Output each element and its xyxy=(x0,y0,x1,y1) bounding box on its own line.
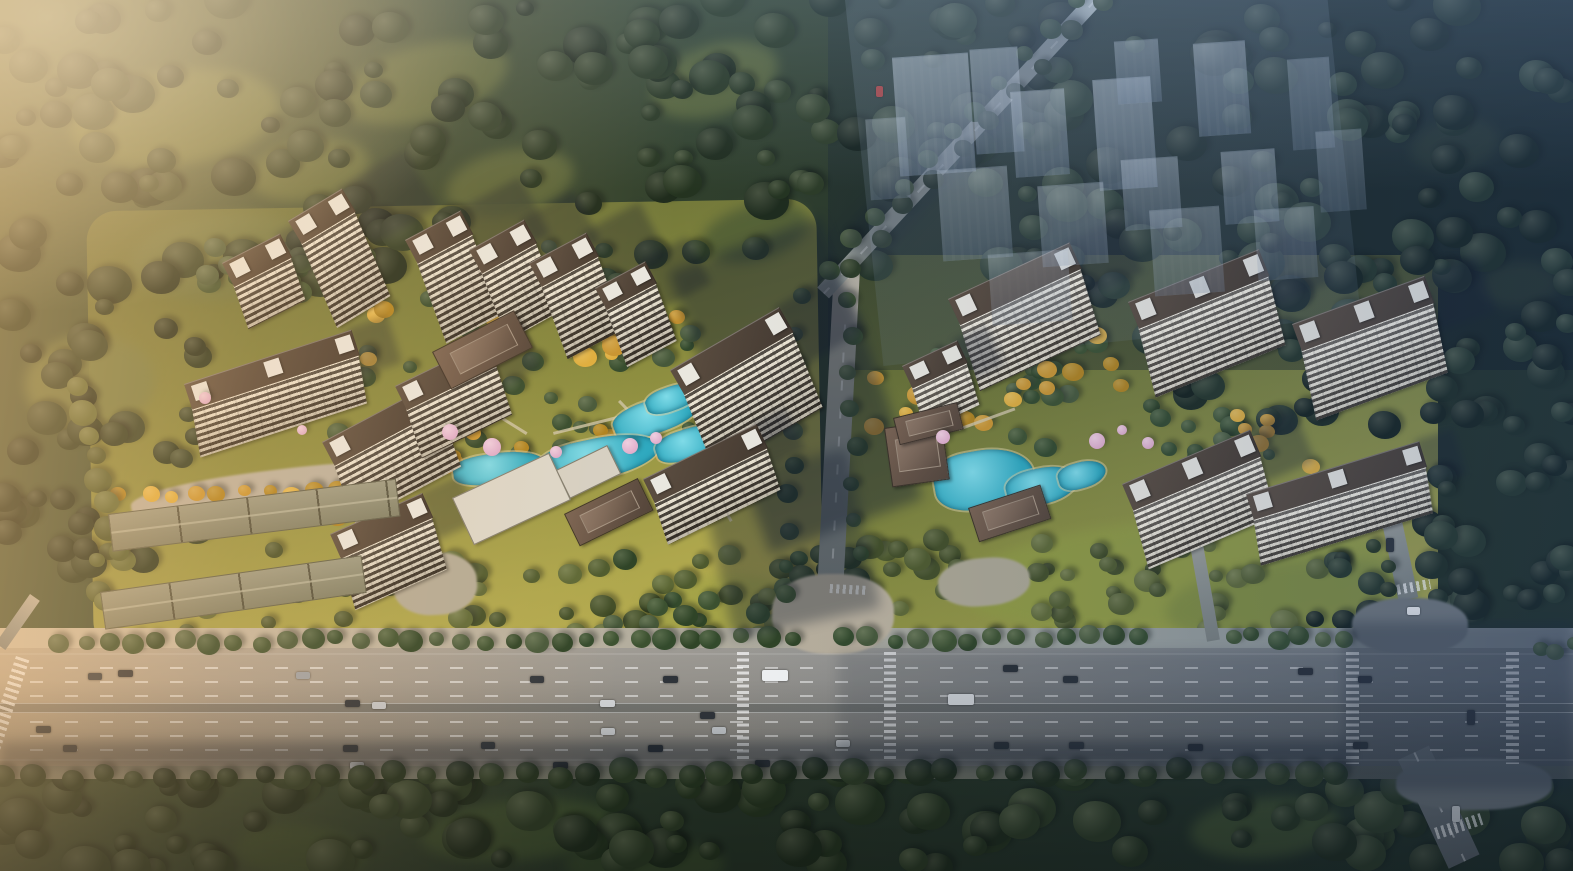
future-ghost-tower xyxy=(937,166,1013,262)
forest-tree xyxy=(904,548,931,571)
forest-tree xyxy=(796,94,830,123)
street-tree xyxy=(277,631,298,649)
forest-tree xyxy=(1438,481,1456,497)
vehicle xyxy=(345,700,360,707)
forest-tree xyxy=(574,52,613,85)
cast-shadow xyxy=(1345,622,1573,790)
forest-tree xyxy=(628,45,668,79)
blossom-tree xyxy=(1142,437,1154,449)
street-tree xyxy=(888,635,903,649)
forest-tree xyxy=(287,130,324,162)
rooftop-penthouse xyxy=(328,194,350,216)
street-tree xyxy=(785,632,801,646)
street-tree xyxy=(1268,631,1290,650)
blossom-tree xyxy=(442,424,458,440)
forest-tree xyxy=(1241,564,1265,584)
forest-tree xyxy=(1431,145,1465,174)
forest-tree xyxy=(1420,402,1446,424)
forest-tree xyxy=(9,218,47,250)
forest-tree xyxy=(1113,379,1129,392)
forest-tree xyxy=(1433,95,1474,130)
street-tree xyxy=(84,468,112,493)
forest-tree xyxy=(523,569,540,583)
forest-tree xyxy=(468,5,504,35)
street-tree xyxy=(1129,628,1148,645)
forest-tree xyxy=(666,835,687,853)
vehicle xyxy=(712,727,726,734)
cast-shadow xyxy=(838,650,1350,762)
blossom-tree xyxy=(622,438,638,454)
forest-tree xyxy=(1499,134,1539,168)
forest-tree xyxy=(1436,217,1473,248)
street-tree xyxy=(1035,632,1053,648)
rooftop-penthouse xyxy=(955,293,977,316)
rooftop-penthouse xyxy=(412,233,434,255)
street-tree xyxy=(874,767,894,785)
rooftop-penthouse xyxy=(1327,469,1347,489)
forest-tree xyxy=(588,559,610,577)
forest-tree xyxy=(1368,411,1401,439)
forest-tree xyxy=(506,791,553,831)
rooftop-penthouse xyxy=(1408,281,1429,303)
street-tree xyxy=(190,770,211,789)
street-tree xyxy=(833,627,854,646)
forest-tree xyxy=(61,846,111,871)
forest-tree xyxy=(280,87,316,118)
street-tree xyxy=(932,630,957,652)
street-tree xyxy=(165,491,178,503)
street-tree xyxy=(477,636,494,651)
street-tree xyxy=(1138,766,1157,783)
forest-tree xyxy=(489,612,506,627)
forest-tree xyxy=(1138,800,1167,825)
forest-tree xyxy=(1149,583,1166,597)
street-tree xyxy=(679,765,705,788)
forest-tree xyxy=(1451,400,1484,428)
street-tree xyxy=(122,634,144,654)
forest-tree xyxy=(243,812,267,832)
street-tree xyxy=(1288,626,1309,645)
forest-tree xyxy=(559,607,574,620)
street-tree xyxy=(87,447,106,464)
rooftop-penthouse xyxy=(942,345,962,364)
street-tree xyxy=(175,630,196,649)
street-tree xyxy=(217,768,238,787)
forest-tree xyxy=(166,836,187,854)
rooftop-penthouse xyxy=(536,256,558,278)
forest-tree xyxy=(211,158,256,196)
forest-tree xyxy=(261,117,280,133)
street-tree xyxy=(124,771,143,788)
forest-tree xyxy=(768,180,790,199)
forest-tree xyxy=(360,81,392,108)
forest-tree xyxy=(1517,589,1542,610)
street-tree xyxy=(302,628,325,649)
forest-tree xyxy=(491,850,512,868)
forest-tree xyxy=(315,70,353,102)
future-ghost-tower xyxy=(1149,206,1225,297)
forest-tree xyxy=(1328,558,1352,578)
future-ghost-tower xyxy=(1193,40,1251,136)
rooftop-penthouse xyxy=(229,257,251,279)
street-tree xyxy=(631,630,651,648)
rooftop-penthouse xyxy=(1402,446,1422,466)
street-tree xyxy=(1105,766,1125,784)
forest-tree xyxy=(1519,210,1557,243)
vehicle xyxy=(296,672,310,679)
forest-tree xyxy=(1027,563,1049,582)
forest-tree xyxy=(1306,611,1324,627)
forest-tree xyxy=(15,830,49,859)
forest-tree xyxy=(184,337,206,356)
forest-tree xyxy=(1448,568,1479,595)
forest-tree xyxy=(1230,409,1245,422)
street-tree xyxy=(1243,627,1259,641)
forest-tree xyxy=(170,449,193,468)
forest-tree xyxy=(674,150,693,166)
vehicle xyxy=(601,728,615,735)
forest-tree xyxy=(537,51,573,81)
forest-tree xyxy=(1533,68,1564,94)
vehicle xyxy=(762,670,788,681)
forest-tree xyxy=(1231,830,1252,848)
forest-tree xyxy=(79,132,115,163)
forest-tree xyxy=(145,806,177,833)
street-tree xyxy=(48,634,69,653)
forest-tree xyxy=(204,238,226,257)
forest-tree xyxy=(647,598,668,616)
forest-tree xyxy=(339,15,375,46)
street-tree xyxy=(525,632,549,653)
forest-tree xyxy=(1031,534,1053,553)
forest-tree xyxy=(0,299,31,331)
forest-tree xyxy=(40,101,72,128)
forest-tree xyxy=(1496,470,1527,496)
blossom-tree xyxy=(936,430,950,444)
forest-tree xyxy=(1361,52,1404,89)
street-tree xyxy=(645,768,667,788)
forest-tree xyxy=(1108,593,1134,615)
forest-tree xyxy=(609,830,654,868)
rooftop-penthouse xyxy=(677,362,700,386)
rooftop-penthouse xyxy=(741,429,762,450)
street-tree xyxy=(79,636,95,650)
street-tree xyxy=(197,634,220,655)
future-ghost-tower xyxy=(865,117,911,201)
forest-tree xyxy=(56,272,84,296)
forest-tree xyxy=(1103,357,1119,371)
forest-tree xyxy=(1521,301,1558,332)
forest-tree xyxy=(754,13,795,48)
forest-tree xyxy=(1209,570,1223,582)
forest-tree xyxy=(641,105,660,121)
forest-tree xyxy=(923,529,949,551)
forest-tree xyxy=(328,149,350,168)
street-tree xyxy=(188,486,205,501)
street-tree xyxy=(378,628,399,647)
forest-tree xyxy=(659,5,699,39)
forest-tree xyxy=(596,784,629,812)
street-tree xyxy=(603,631,619,646)
forest-tree xyxy=(1415,551,1448,579)
forest-tree xyxy=(468,102,502,131)
street-tree xyxy=(579,633,594,647)
forest-tree xyxy=(364,62,383,78)
forest-tree xyxy=(154,318,178,339)
forest-tree xyxy=(698,591,720,610)
forest-tree xyxy=(1016,378,1031,390)
forest-tree xyxy=(1004,392,1022,407)
rooftop-penthouse xyxy=(402,380,423,401)
street-tree xyxy=(224,635,242,651)
blossom-tree xyxy=(199,392,211,404)
forest-tree xyxy=(1392,114,1417,135)
street-tree xyxy=(256,766,275,783)
forest-tree xyxy=(522,130,557,160)
forest-tree xyxy=(907,793,950,830)
forest-tree xyxy=(1456,57,1482,79)
rooftop-penthouse xyxy=(1234,435,1256,458)
street-tree xyxy=(327,630,343,644)
blossom-tree xyxy=(550,446,562,458)
aerial-rendering-canvas: Aerial architectural rendering of a Chin… xyxy=(0,0,1573,871)
vehicle xyxy=(663,676,678,683)
street-tree xyxy=(1226,630,1242,644)
forest-tree xyxy=(1545,848,1573,871)
street-tree xyxy=(652,629,676,650)
forest-tree xyxy=(660,811,684,831)
street-tree xyxy=(146,632,165,649)
forest-tree xyxy=(699,842,720,860)
rooftop-penthouse xyxy=(571,237,593,259)
forest-tree xyxy=(20,344,42,363)
forest-tree xyxy=(1034,438,1057,457)
street-tree xyxy=(398,630,423,652)
forest-tree xyxy=(1532,344,1563,370)
rooftop-penthouse xyxy=(1135,297,1157,320)
forest-tree xyxy=(963,836,987,856)
rooftop-penthouse xyxy=(1299,320,1320,342)
street-tree xyxy=(552,633,573,652)
street-tree xyxy=(548,767,573,789)
forest-tree xyxy=(1556,314,1573,333)
forest-tree xyxy=(100,422,128,446)
forest-tree xyxy=(1551,402,1573,422)
vehicle xyxy=(530,676,544,683)
street-tree xyxy=(1380,582,1397,597)
forest-tree xyxy=(351,840,373,859)
forest-tree xyxy=(578,396,597,412)
street-tree xyxy=(982,628,1001,645)
vehicle xyxy=(1452,806,1460,822)
forest-tree xyxy=(808,793,829,811)
street-tree xyxy=(840,259,861,278)
forest-tree xyxy=(558,564,582,584)
forest-tree xyxy=(157,65,184,88)
street-tree xyxy=(238,485,251,496)
forest-tree xyxy=(1543,584,1565,603)
rooftop-penthouse xyxy=(650,473,671,494)
forest-tree xyxy=(1161,442,1177,456)
forest-tree xyxy=(16,109,36,126)
street-tree xyxy=(143,486,160,502)
forest-tree xyxy=(1031,603,1052,621)
forest-tree xyxy=(50,489,75,510)
forest-tree xyxy=(1049,591,1070,609)
forest-tree xyxy=(139,175,159,192)
forest-tree xyxy=(101,172,138,203)
rooftop-penthouse xyxy=(263,358,283,378)
street-tree xyxy=(417,767,436,784)
forest-tree xyxy=(883,562,901,577)
forest-tree xyxy=(1295,793,1328,821)
forest-tree xyxy=(87,266,132,304)
vehicle xyxy=(36,726,51,733)
forest-tree xyxy=(91,68,130,101)
forest-tree xyxy=(1424,521,1458,550)
forest-tree xyxy=(797,172,824,195)
forest-tree xyxy=(689,60,730,95)
street-tree xyxy=(680,630,701,649)
forest-tree xyxy=(544,392,558,404)
street-tree xyxy=(1007,629,1025,645)
forest-tree xyxy=(590,595,616,617)
blossom-tree xyxy=(1089,433,1105,449)
forest-tree xyxy=(1312,823,1357,861)
street-tree xyxy=(284,765,311,790)
rooftop-penthouse xyxy=(476,243,498,265)
blossom-tree xyxy=(297,425,307,435)
forest-tree xyxy=(1023,390,1040,404)
forest-tree xyxy=(431,94,465,122)
street-tree xyxy=(79,427,99,445)
forest-tree xyxy=(1459,172,1494,202)
street-tree xyxy=(69,400,97,426)
forest-tree xyxy=(147,148,176,173)
forest-tree xyxy=(9,50,48,83)
forest-tree xyxy=(700,0,745,17)
forest-tree xyxy=(1521,806,1566,844)
forest-tree xyxy=(663,165,702,198)
forest-tree xyxy=(369,794,399,819)
forest-tree xyxy=(1497,207,1522,228)
rooftop-penthouse xyxy=(909,360,929,379)
forest-tree xyxy=(111,849,151,871)
street-tree xyxy=(62,770,84,790)
future-ghost-tower xyxy=(1254,206,1319,281)
forest-tree xyxy=(7,438,39,465)
forest-tree xyxy=(56,173,83,196)
forest-tree xyxy=(674,570,697,589)
street-tree xyxy=(1079,625,1100,644)
forest-tree xyxy=(1008,428,1027,445)
forest-tree xyxy=(1505,323,1526,341)
future-ghost-tower xyxy=(1315,128,1367,212)
street-tree xyxy=(94,491,119,513)
vehicle xyxy=(88,673,102,680)
forest-tree xyxy=(696,128,733,160)
street-tree xyxy=(452,634,470,650)
street-tree xyxy=(958,634,977,651)
blossom-tree xyxy=(1117,425,1127,435)
vehicle xyxy=(118,670,133,677)
forest-tree xyxy=(192,30,222,55)
forest-tree xyxy=(671,80,693,99)
forest-tree xyxy=(372,12,409,43)
forest-tree xyxy=(554,815,598,852)
vehicle xyxy=(700,712,715,719)
forest-tree xyxy=(1525,472,1550,493)
vehicle xyxy=(372,702,386,709)
forest-tree xyxy=(593,424,608,437)
forest-tree xyxy=(89,553,105,567)
forest-tree xyxy=(427,791,458,817)
forest-tree xyxy=(0,135,27,159)
forest-tree xyxy=(732,105,773,140)
future-ghost-tower xyxy=(1114,39,1162,105)
forest-tree xyxy=(1039,381,1055,395)
street-tree xyxy=(253,637,271,653)
rooftop-penthouse xyxy=(407,498,428,519)
forest-tree xyxy=(75,10,103,34)
forest-tree xyxy=(613,549,637,570)
street-tree xyxy=(699,630,721,649)
street-tree xyxy=(856,626,878,646)
forest-tree xyxy=(835,783,885,825)
forest-tree xyxy=(204,0,249,19)
street-tree xyxy=(1315,632,1331,647)
forest-tree xyxy=(1073,801,1121,842)
rooftop-penthouse xyxy=(446,215,468,237)
forest-tree xyxy=(194,850,234,871)
street-tree xyxy=(100,633,120,651)
forest-tree xyxy=(1418,188,1441,208)
forest-tree xyxy=(1099,557,1117,572)
street-tree xyxy=(1057,628,1076,645)
rooftop-penthouse xyxy=(337,529,358,550)
blossom-tree xyxy=(650,432,662,444)
forest-tree xyxy=(27,490,47,507)
forest-tree xyxy=(71,330,108,361)
vehicle xyxy=(600,700,615,707)
forest-tree xyxy=(403,361,417,373)
rooftop-penthouse xyxy=(1354,300,1375,322)
forest-tree xyxy=(217,79,239,98)
forest-tree xyxy=(446,818,491,857)
street-tree xyxy=(907,629,929,649)
forest-tree xyxy=(1410,18,1449,51)
rooftop-penthouse xyxy=(335,334,355,354)
street-tree xyxy=(153,768,176,788)
street-tree xyxy=(1366,539,1381,553)
forest-tree xyxy=(1222,800,1247,821)
forest-tree xyxy=(899,848,928,871)
forest-tree xyxy=(776,828,822,867)
rooftop-penthouse xyxy=(1129,479,1151,502)
forest-tree xyxy=(757,150,775,166)
forest-tree xyxy=(1062,363,1084,381)
forest-tree xyxy=(1060,569,1075,581)
rooftop-penthouse xyxy=(509,224,531,246)
forest-tree xyxy=(1503,416,1525,435)
forest-tree xyxy=(95,299,114,315)
forest-tree xyxy=(334,611,353,627)
forest-tree xyxy=(637,148,660,167)
street-tree xyxy=(1103,625,1125,645)
forest-tree xyxy=(1181,420,1196,433)
rooftop-penthouse xyxy=(630,266,651,286)
rooftop-penthouse xyxy=(765,312,788,336)
